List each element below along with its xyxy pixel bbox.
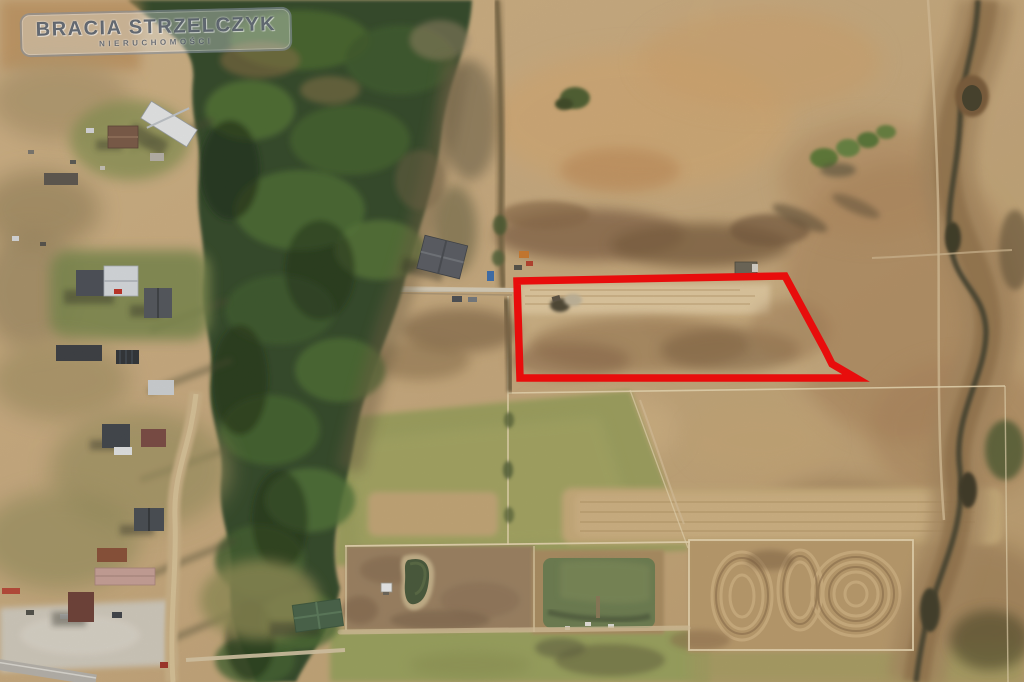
aerial-photo: BRACIA STRZELCZYK NIERUCHOMOŚCI — [0, 0, 1024, 682]
watermark-subtitle: NIERUCHOMOŚCI — [99, 38, 214, 49]
watermark-logo: BRACIA STRZELCZYK NIERUCHOMOŚCI — [20, 7, 293, 58]
photo-grain — [0, 0, 1024, 682]
aerial-photo-canvas — [0, 0, 1024, 682]
watermark-title: BRACIA STRZELCZYK — [36, 14, 277, 40]
